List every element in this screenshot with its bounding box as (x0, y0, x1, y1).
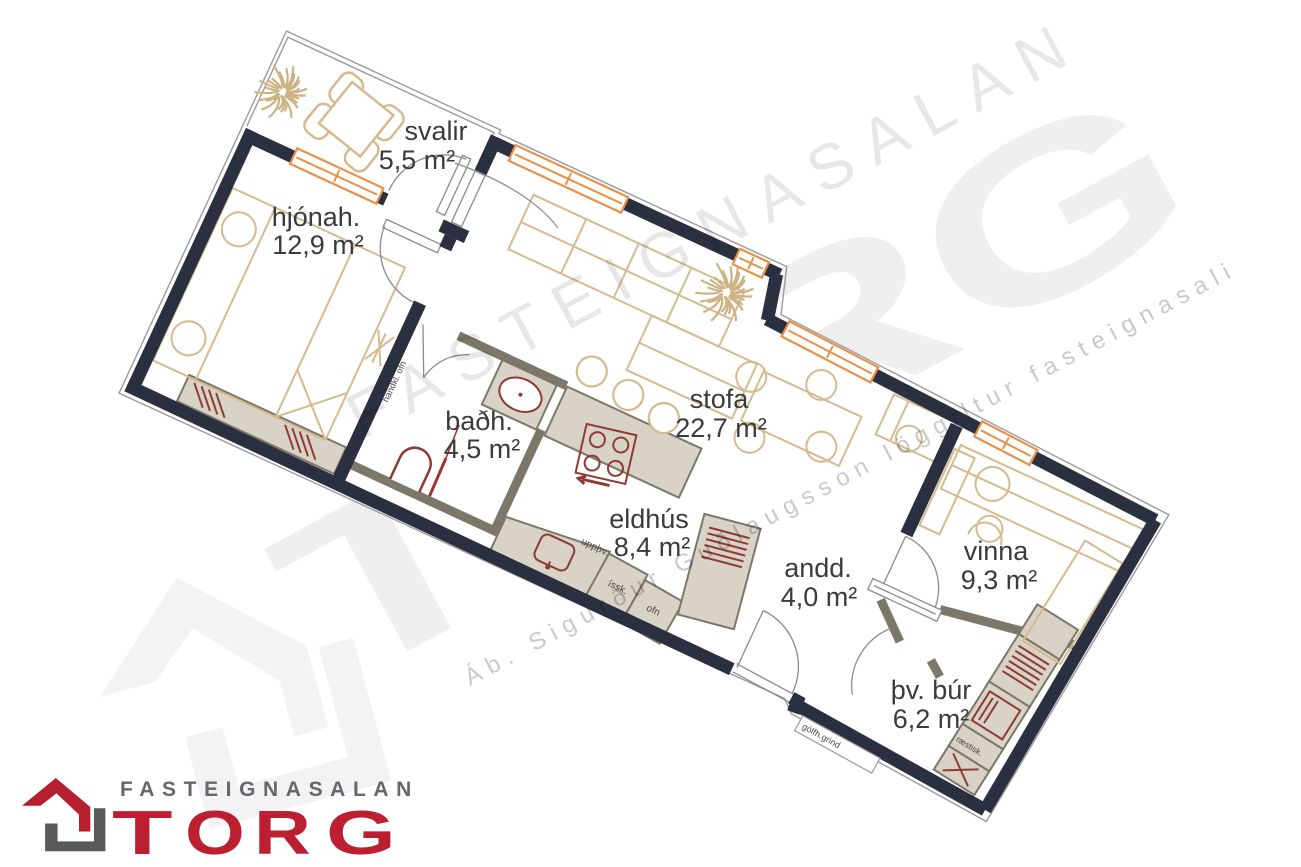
svg-text:baðh.: baðh. (445, 406, 513, 436)
svg-text:T: T (112, 798, 173, 867)
svg-text:R: R (254, 799, 311, 867)
svg-text:G: G (326, 799, 396, 867)
svg-text:O: O (185, 798, 245, 867)
svg-text:andd.: andd. (784, 553, 852, 583)
svg-text:þv. búr: þv. búr (891, 675, 972, 705)
svg-text:5,5 m²: 5,5 m² (379, 145, 456, 175)
svg-text:vinna: vinna (964, 536, 1030, 566)
svg-text:22,7 m²: 22,7 m² (675, 413, 767, 443)
svg-text:6,2 m²: 6,2 m² (893, 704, 970, 734)
svg-text:stofa: stofa (690, 384, 750, 414)
svg-text:hjónah.: hjónah. (272, 202, 361, 232)
svg-text:9,3 m²: 9,3 m² (961, 565, 1038, 595)
svg-text:12,9 m²: 12,9 m² (272, 230, 364, 260)
svg-text:4,0 m²: 4,0 m² (781, 582, 858, 612)
svg-text:eldhús: eldhús (609, 504, 689, 534)
svg-text:svalir: svalir (404, 116, 467, 146)
svg-text:4,5 m²: 4,5 m² (444, 434, 521, 464)
